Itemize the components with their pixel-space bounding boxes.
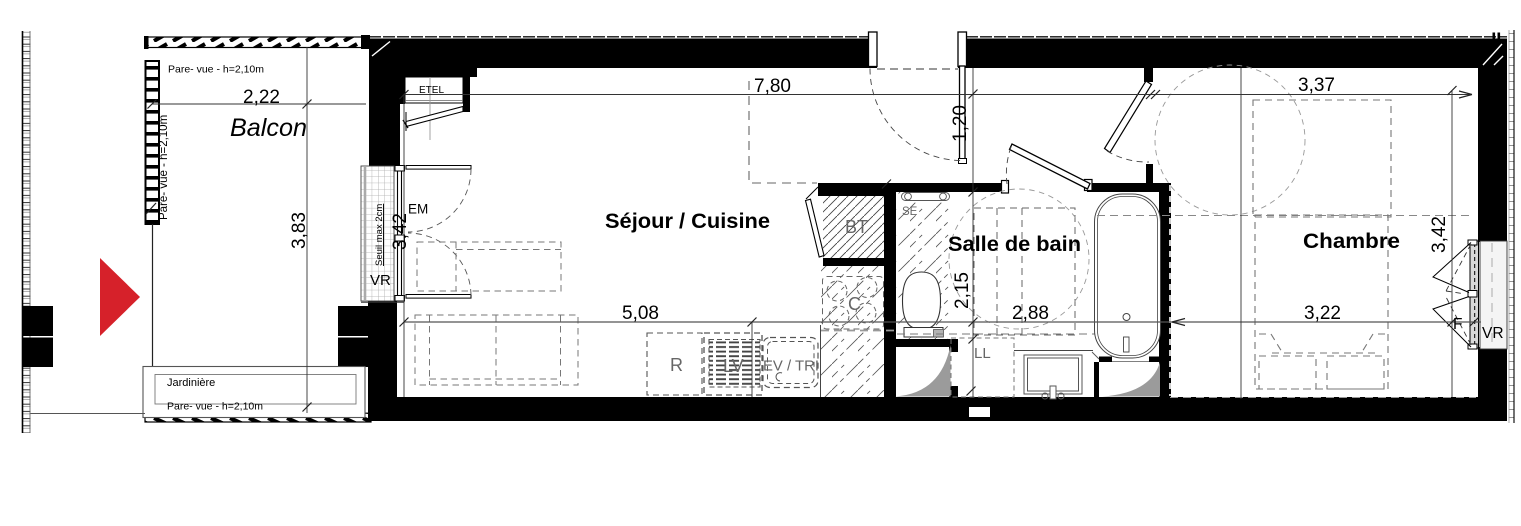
svg-text:R: R <box>670 355 683 375</box>
svg-text:3,83: 3,83 <box>289 212 310 249</box>
svg-text:1,20: 1,20 <box>950 105 971 142</box>
svg-text:3,42: 3,42 <box>1429 216 1450 253</box>
svg-text:3,42: 3,42 <box>390 213 411 250</box>
svg-text:Chambre: Chambre <box>1303 229 1400 253</box>
svg-text:2,15: 2,15 <box>952 272 973 309</box>
svg-text:LL: LL <box>974 345 991 362</box>
svg-text:F: F <box>1453 316 1462 333</box>
svg-text:2,22: 2,22 <box>243 87 280 108</box>
svg-text:C: C <box>848 294 861 314</box>
svg-text:EV / TRI: EV / TRI <box>763 359 819 375</box>
svg-text:Pare- vue - h=2,10m: Pare- vue - h=2,10m <box>168 64 264 76</box>
svg-text:ETEL: ETEL <box>419 85 444 96</box>
svg-text:2,88: 2,88 <box>1012 303 1049 324</box>
svg-text:Salle de bain: Salle de bain <box>948 233 1081 256</box>
svg-text:7,80: 7,80 <box>754 76 791 97</box>
svg-text:EM: EM <box>408 202 428 217</box>
svg-text:Seuil max 2cm: Seuil max 2cm <box>374 204 385 266</box>
svg-text:5,08: 5,08 <box>622 303 659 324</box>
svg-text:3,37: 3,37 <box>1298 75 1335 96</box>
svg-text:Jardinière: Jardinière <box>167 377 215 389</box>
svg-text:BT: BT <box>845 217 868 237</box>
svg-text:Balcon: Balcon <box>230 114 307 142</box>
svg-text:SE: SE <box>902 206 918 218</box>
svg-text:LV: LV <box>723 356 744 376</box>
svg-text:VR: VR <box>370 272 391 289</box>
svg-text:3,22: 3,22 <box>1304 303 1341 324</box>
svg-text:Séjour / Cuisine: Séjour / Cuisine <box>605 209 770 233</box>
svg-text:Pare- vue - h=2,10m: Pare- vue - h=2,10m <box>167 401 263 413</box>
svg-text:VR: VR <box>1482 325 1504 342</box>
svg-text:Pare- vue - h=2,10m: Pare- vue - h=2,10m <box>158 115 170 220</box>
